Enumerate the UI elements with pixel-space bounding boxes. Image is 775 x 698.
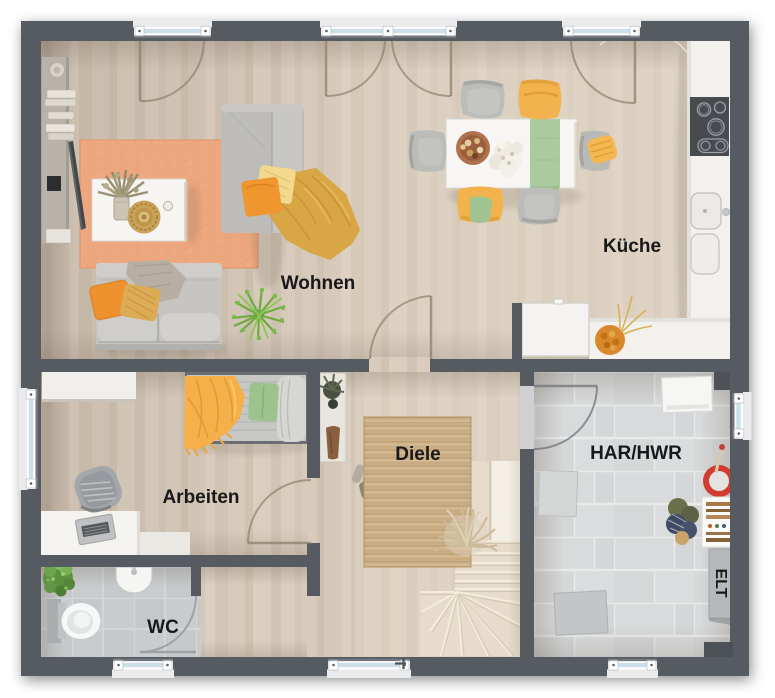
svg-text:Diele: Diele <box>395 444 440 465</box>
svg-text:Küche: Küche <box>603 236 661 257</box>
svg-text:Arbeiten: Arbeiten <box>162 487 239 508</box>
svg-text:HAR/HWR: HAR/HWR <box>590 443 682 464</box>
svg-text:ELT: ELT <box>712 568 729 597</box>
svg-text:Wohnen: Wohnen <box>281 273 356 294</box>
svg-text:WC: WC <box>147 617 179 638</box>
